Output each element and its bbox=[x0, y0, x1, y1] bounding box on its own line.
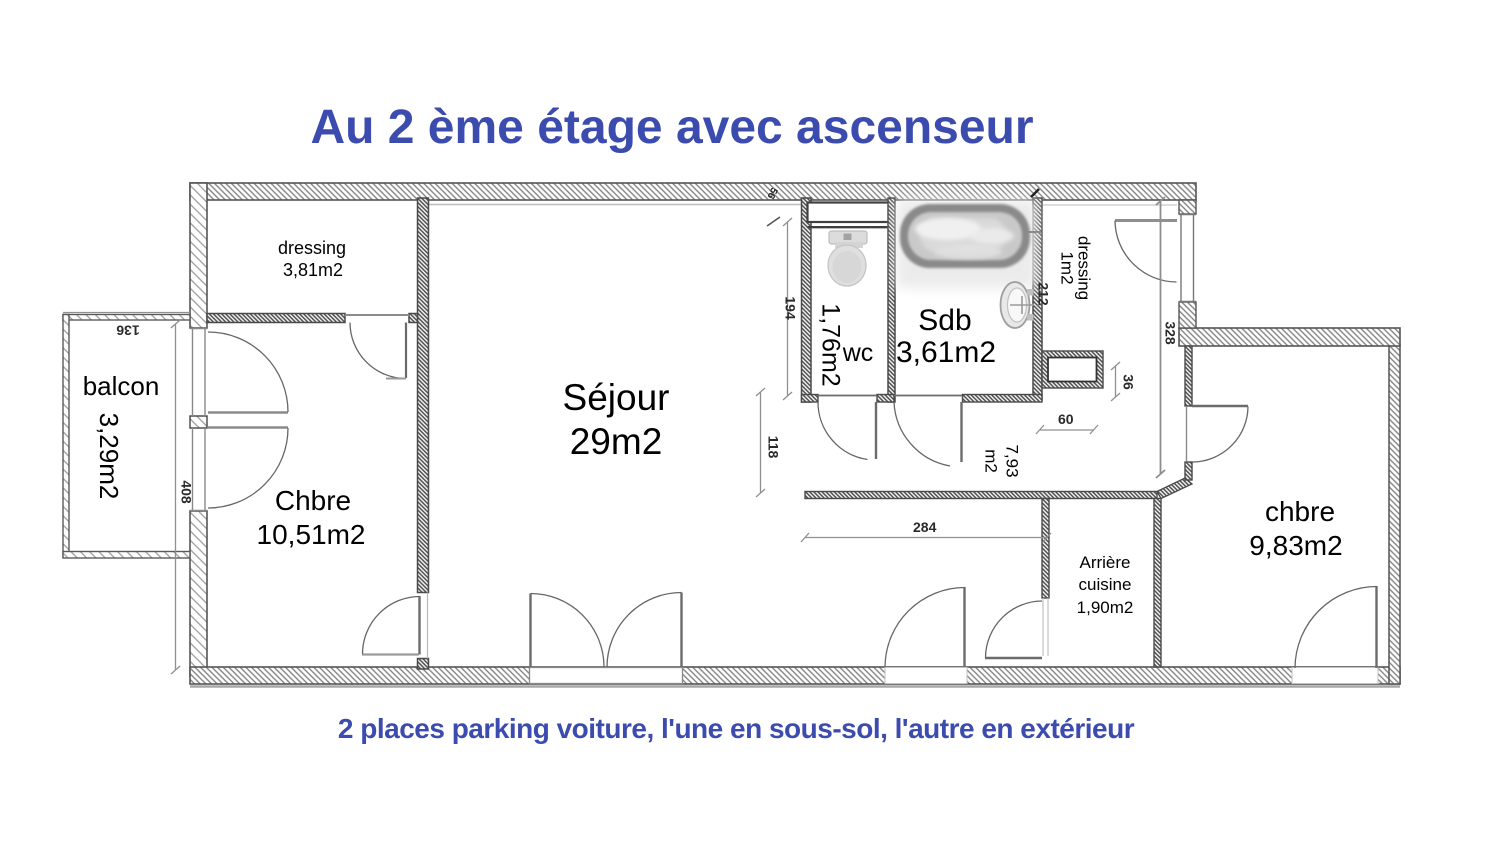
svg-text:10,51m2: 10,51m2 bbox=[257, 519, 366, 550]
svg-text:2 places parking voiture, l'un: 2 places parking voiture, l'une en sous-… bbox=[338, 713, 1135, 744]
svg-text:136: 136 bbox=[116, 322, 140, 338]
svg-text:Séjour: Séjour bbox=[563, 377, 670, 418]
svg-text:Au 2 ème étage avec ascenseur: Au 2 ème étage avec ascenseur bbox=[310, 101, 1033, 154]
svg-text:3,61m2: 3,61m2 bbox=[896, 336, 996, 369]
svg-text:1m2: 1m2 bbox=[1058, 251, 1077, 284]
svg-text:cuisine: cuisine bbox=[1079, 575, 1132, 594]
svg-text:3,29m2: 3,29m2 bbox=[94, 413, 124, 500]
svg-text:Arrière: Arrière bbox=[1079, 553, 1130, 572]
svg-text:328: 328 bbox=[1162, 321, 1178, 345]
svg-text:7,93: 7,93 bbox=[1003, 444, 1022, 477]
svg-text:36: 36 bbox=[1120, 374, 1136, 390]
svg-text:9,83m2: 9,83m2 bbox=[1249, 530, 1342, 561]
svg-text:1,76m2: 1,76m2 bbox=[816, 303, 844, 386]
svg-text:3,81m2: 3,81m2 bbox=[283, 260, 343, 280]
svg-text:29m2: 29m2 bbox=[570, 421, 663, 462]
svg-text:212: 212 bbox=[1035, 282, 1051, 306]
svg-text:408: 408 bbox=[178, 480, 194, 504]
svg-text:1,90m2: 1,90m2 bbox=[1077, 598, 1134, 617]
svg-text:balcon: balcon bbox=[83, 371, 160, 401]
svg-text:wc: wc bbox=[842, 339, 874, 367]
svg-text:118: 118 bbox=[765, 436, 781, 459]
svg-text:194: 194 bbox=[782, 296, 798, 320]
svg-text:Sdb: Sdb bbox=[918, 304, 971, 337]
svg-text:m2: m2 bbox=[982, 449, 1001, 473]
svg-text:60: 60 bbox=[1058, 411, 1074, 427]
svg-text:dressing: dressing bbox=[278, 238, 346, 258]
svg-text:284: 284 bbox=[913, 519, 937, 535]
svg-text:Chbre: Chbre bbox=[275, 485, 351, 516]
svg-text:chbre: chbre bbox=[1265, 496, 1335, 527]
